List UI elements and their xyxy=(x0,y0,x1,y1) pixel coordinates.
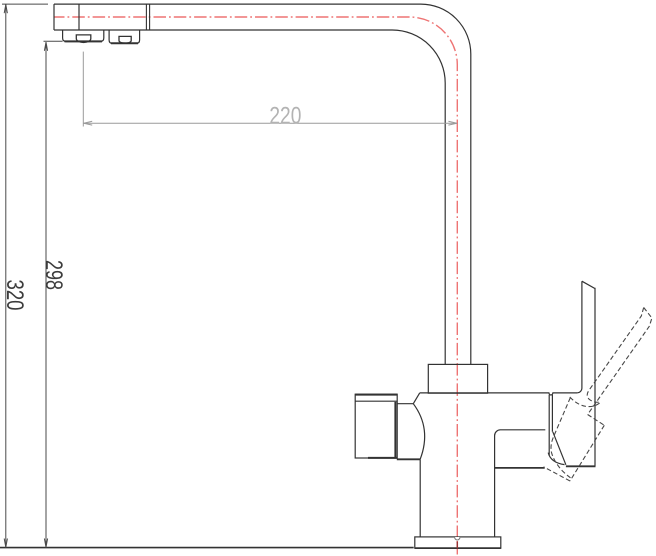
svg-text:220: 220 xyxy=(269,103,301,130)
svg-text:298: 298 xyxy=(40,260,67,290)
svg-text:320: 320 xyxy=(1,280,28,311)
